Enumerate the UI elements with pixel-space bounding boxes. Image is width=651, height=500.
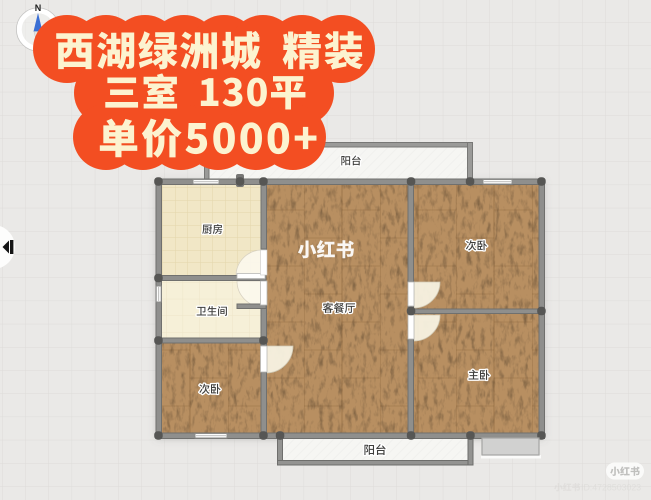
svg-text:N: N (35, 3, 42, 13)
svg-text:ID:4728503023: ID:4728503023 (581, 483, 641, 493)
